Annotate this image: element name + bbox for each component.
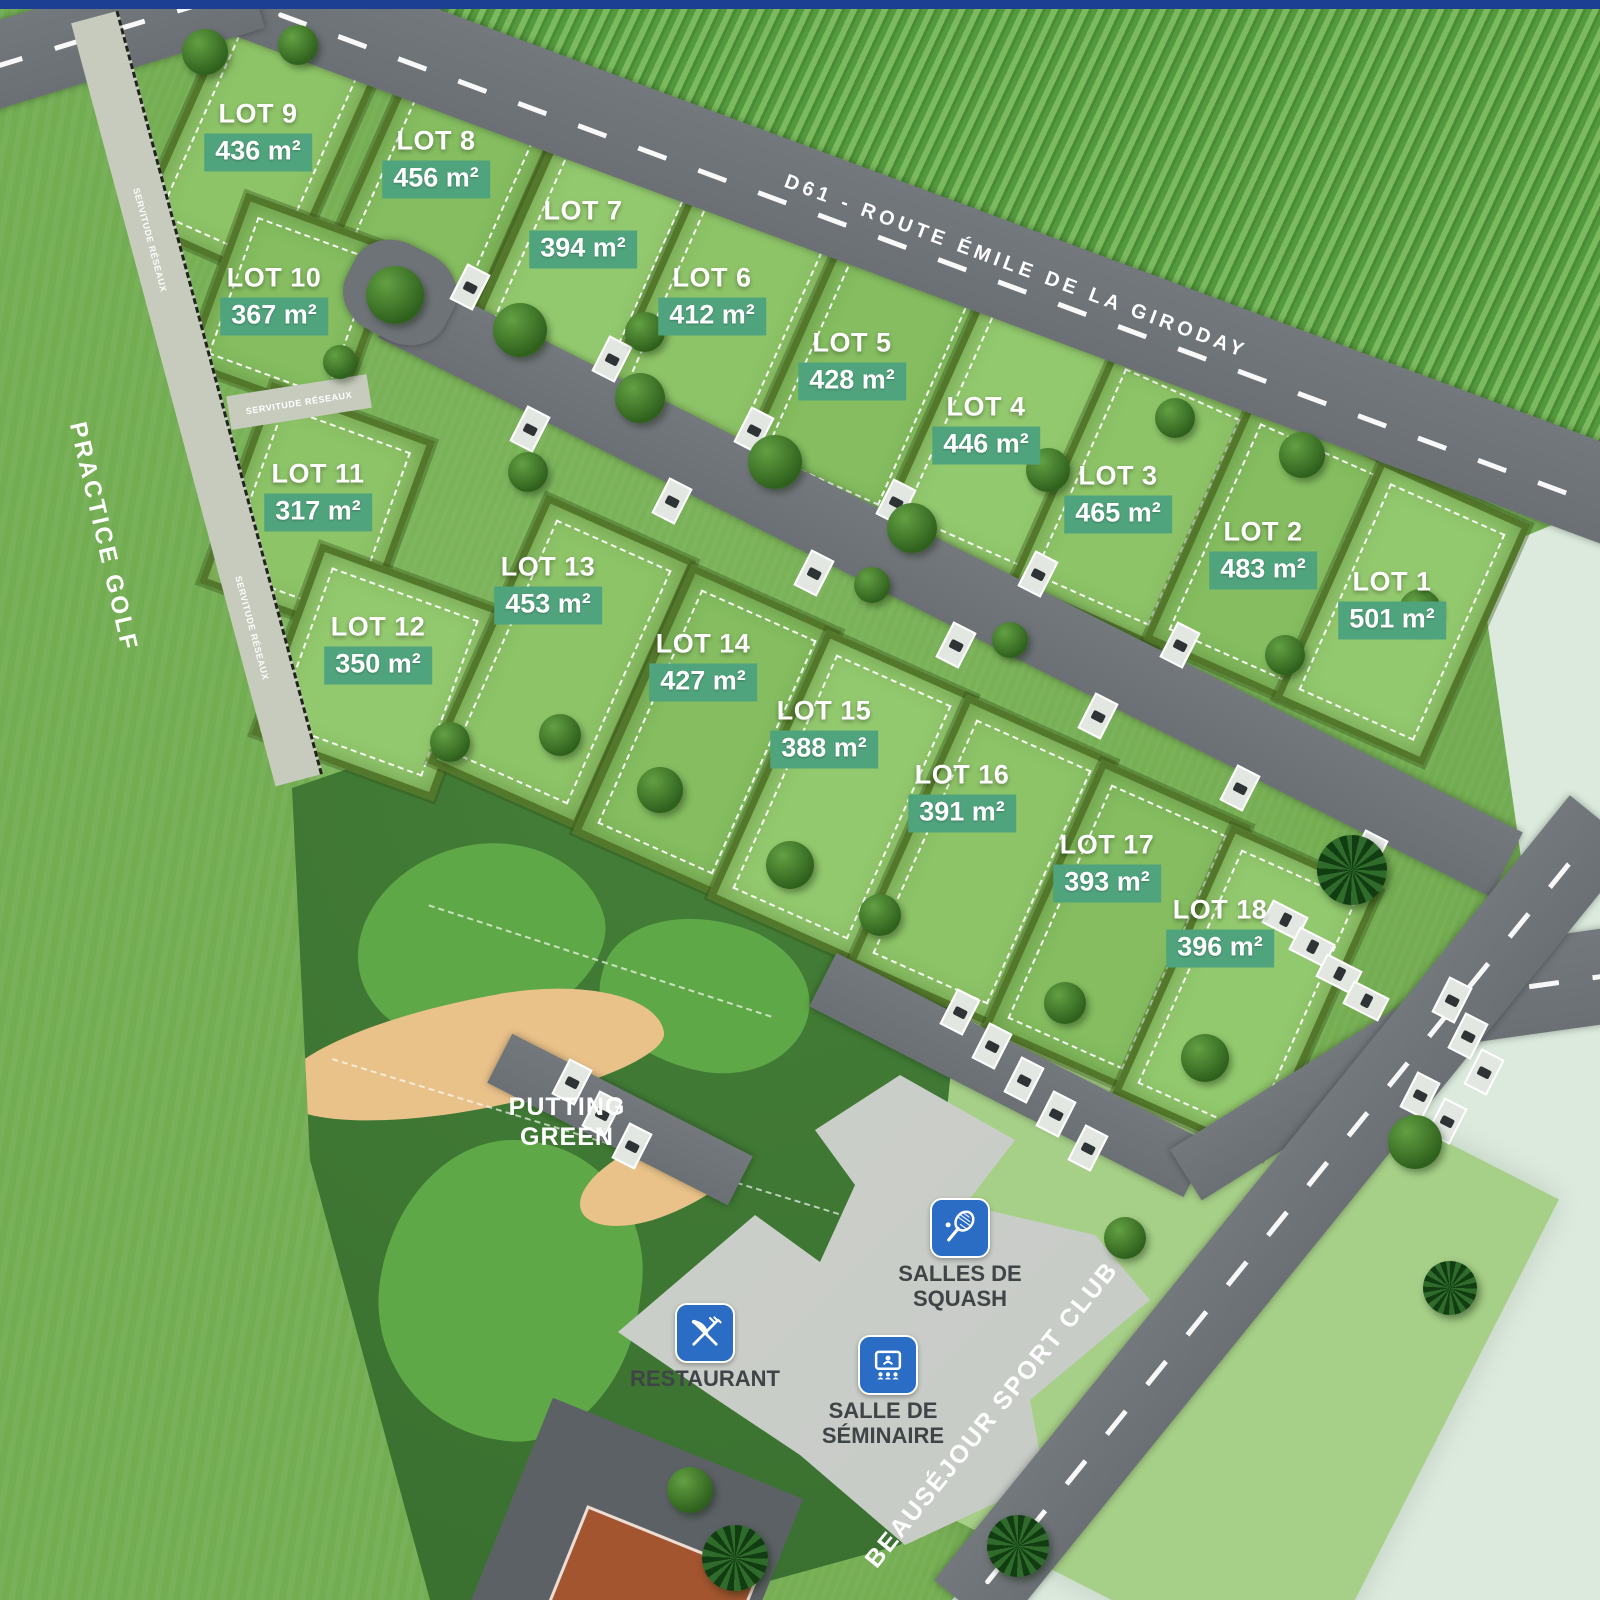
tree: [615, 373, 665, 423]
lot-area-badge: 483 m²: [1209, 552, 1317, 590]
lot-area-badge: 394 m²: [529, 231, 637, 269]
palm-tree: [1317, 835, 1387, 905]
lot-1-label: LOT 1 501 m²: [1338, 567, 1446, 640]
lot-14-label: LOT 14 427 m²: [649, 629, 757, 702]
lot-area-badge: 388 m²: [770, 731, 878, 769]
lot-name: LOT 16: [908, 760, 1016, 791]
lot-name: LOT 1: [1338, 567, 1446, 598]
car-icon: [522, 422, 538, 436]
squash-icon-badge: [930, 1198, 990, 1258]
presentation-screen-icon: [868, 1345, 908, 1385]
lot-name: LOT 8: [382, 126, 490, 157]
lot-area-badge: 396 m²: [1166, 930, 1274, 968]
tree: [887, 503, 937, 553]
tree: [854, 567, 890, 603]
tree: [182, 29, 228, 75]
lot-name: LOT 12: [324, 612, 432, 643]
car-icon: [984, 1039, 1000, 1053]
lot-name: LOT 7: [529, 196, 637, 227]
lot-18-label: LOT 18 396 m²: [1166, 895, 1274, 968]
car-icon: [1439, 1114, 1455, 1128]
lot-8-label: LOT 8 456 m²: [382, 126, 490, 199]
palm-tree: [1423, 1261, 1477, 1315]
lot-17-label: LOT 17 393 m²: [1053, 830, 1161, 903]
tree: [278, 25, 318, 65]
lot-area-badge: 391 m²: [908, 795, 1016, 833]
restaurant-icon-badge: [675, 1303, 735, 1363]
car-icon: [952, 1005, 968, 1019]
lot-name: LOT 13: [494, 552, 602, 583]
lot-6-label: LOT 6 412 m²: [658, 263, 766, 336]
seminar-icon-badge: [858, 1335, 918, 1395]
seminar-label: SALLE DE SÉMINAIRE: [803, 1399, 963, 1448]
lot-area-badge: 412 m²: [658, 298, 766, 336]
squash-racket-icon: [940, 1208, 980, 1248]
tree: [1104, 1217, 1146, 1259]
car-icon: [1048, 1107, 1064, 1121]
car-icon: [1030, 567, 1046, 581]
lot-name: LOT 9: [204, 99, 312, 130]
lot-4-label: LOT 4 446 m²: [932, 392, 1040, 465]
car-icon: [1476, 1065, 1492, 1079]
car-icon: [1090, 709, 1106, 723]
car-icon: [746, 423, 762, 437]
lot-name: LOT 5: [798, 328, 906, 359]
car-icon: [1332, 966, 1346, 982]
restaurant-icon: [685, 1313, 725, 1353]
lot-16-label: LOT 16 391 m²: [908, 760, 1016, 833]
lot-5-label: LOT 5 428 m²: [798, 328, 906, 401]
lot-area-badge: 501 m²: [1338, 602, 1446, 640]
car-icon: [564, 1075, 580, 1089]
tree: [323, 345, 357, 379]
site-plan-map: D61 - ROUTE ÉMILE DE LA GIRODAY SERVITUD…: [0, 0, 1600, 1600]
lot-2-label: LOT 2 483 m²: [1209, 517, 1317, 590]
car-icon: [1460, 1029, 1476, 1043]
tree: [859, 894, 901, 936]
lot-9-label: LOT 9 436 m²: [204, 99, 312, 172]
tree: [748, 435, 802, 489]
lot-11-label: LOT 11 317 m²: [264, 459, 372, 532]
car-icon: [806, 566, 822, 580]
car-icon: [462, 280, 478, 294]
restaurant-label: RESTAURANT: [610, 1367, 800, 1392]
tree: [430, 722, 470, 762]
tree: [1279, 432, 1325, 478]
lot-3-label: LOT 3 465 m²: [1064, 461, 1172, 534]
palm-tree: [702, 1525, 768, 1591]
lot-13-label: LOT 13 453 m²: [494, 552, 602, 625]
lot-area-badge: 453 m²: [494, 587, 602, 625]
lot-10-label: LOT 10 367 m²: [220, 263, 328, 336]
tree: [493, 303, 547, 357]
lot-15-label: LOT 15 388 m²: [770, 696, 878, 769]
lot-12-label: LOT 12 350 m²: [324, 612, 432, 685]
lot-area-badge: 427 m²: [649, 664, 757, 702]
lot-area-badge: 317 m²: [264, 494, 372, 532]
top-border-strip: [0, 0, 1600, 9]
lot-name: LOT 2: [1209, 517, 1317, 548]
lot-name: LOT 3: [1064, 461, 1172, 492]
squash-label: SALLES DE SQUASH: [885, 1262, 1035, 1311]
tree: [1181, 1034, 1229, 1082]
lot-name: LOT 4: [932, 392, 1040, 423]
lot-area-badge: 465 m²: [1064, 496, 1172, 534]
lot-7-label: LOT 7 394 m²: [529, 196, 637, 269]
tree: [539, 714, 581, 756]
tree: [1388, 1115, 1442, 1169]
lot-area-badge: 393 m²: [1053, 865, 1161, 903]
car-icon: [1305, 939, 1319, 955]
car-icon: [1232, 781, 1248, 795]
tree: [1265, 635, 1305, 675]
tree: [1044, 982, 1086, 1024]
tree: [1155, 398, 1195, 438]
tree: [366, 266, 424, 324]
lot-name: LOT 15: [770, 696, 878, 727]
car-icon: [664, 494, 680, 508]
lot-area-badge: 428 m²: [798, 363, 906, 401]
car-icon: [1444, 993, 1460, 1007]
tree: [992, 622, 1028, 658]
lot-area-badge: 446 m²: [932, 427, 1040, 465]
tree: [508, 452, 548, 492]
lot-name: LOT 11: [264, 459, 372, 490]
lot-area-badge: 436 m²: [204, 134, 312, 172]
car-icon: [1278, 912, 1292, 928]
tree: [637, 767, 683, 813]
putting-green-label: PUTTING GREEN: [507, 1092, 627, 1152]
lot-area-badge: 367 m²: [220, 298, 328, 336]
lot-name: LOT 6: [658, 263, 766, 294]
lot-area-badge: 456 m²: [382, 161, 490, 199]
tree: [766, 841, 814, 889]
car-icon: [1016, 1073, 1032, 1087]
lot-name: LOT 17: [1053, 830, 1161, 861]
car-icon: [1080, 1141, 1096, 1155]
tree: [667, 1467, 713, 1513]
car-icon: [1359, 993, 1373, 1009]
car-icon: [948, 638, 964, 652]
car-icon: [1412, 1088, 1428, 1102]
lot-name: LOT 10: [220, 263, 328, 294]
lot-area-badge: 350 m²: [324, 647, 432, 685]
palm-tree: [987, 1515, 1049, 1577]
car-icon: [604, 352, 620, 366]
car-icon: [1172, 638, 1188, 652]
lot-name: LOT 18: [1166, 895, 1274, 926]
lot-name: LOT 14: [649, 629, 757, 660]
